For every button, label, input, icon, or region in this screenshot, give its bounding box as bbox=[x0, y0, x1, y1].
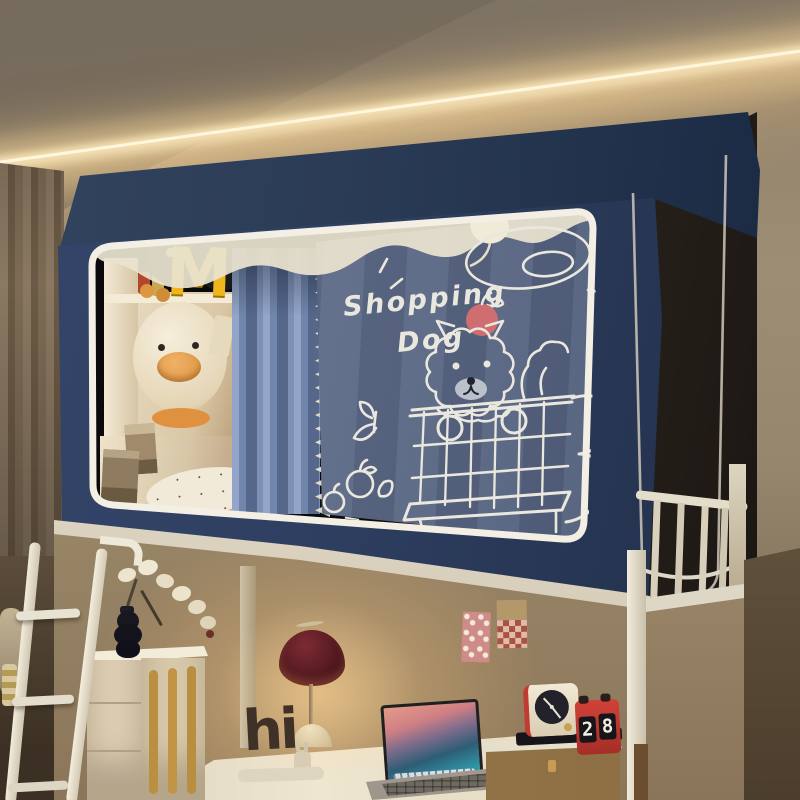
duck-feet bbox=[152, 408, 210, 428]
duck-eye-left bbox=[158, 344, 165, 351]
flip-digit-left: 2 bbox=[578, 716, 596, 743]
sideboard-slat-door bbox=[141, 658, 205, 800]
cabinet-handle bbox=[548, 760, 556, 772]
mcdonalds-arch-icon: M bbox=[165, 239, 233, 307]
flip-calendar: 2 8 bbox=[575, 699, 622, 755]
inner-curtain-blue bbox=[232, 248, 320, 514]
checker-card-pattern bbox=[497, 620, 527, 649]
door-slat bbox=[149, 670, 158, 794]
window-curtain bbox=[0, 163, 64, 565]
hearts-card bbox=[461, 612, 491, 663]
chair-leg bbox=[634, 744, 648, 800]
orange-fruit bbox=[140, 284, 154, 298]
flip-digit-right: 8 bbox=[598, 713, 616, 740]
photo-card-2 bbox=[101, 449, 140, 509]
door-slat bbox=[187, 666, 196, 794]
room-photo: M Shopping Dog bbox=[0, 0, 800, 800]
drawer-line bbox=[87, 702, 141, 704]
clock-dial bbox=[534, 689, 570, 725]
door-slat bbox=[168, 668, 177, 794]
black-vase bbox=[112, 606, 144, 658]
hi-letters: hi bbox=[241, 699, 297, 763]
analog-clock bbox=[523, 683, 581, 738]
checker-card bbox=[497, 600, 528, 649]
clock-button bbox=[564, 723, 572, 731]
drawer-line bbox=[87, 750, 141, 752]
duck-beak bbox=[157, 352, 201, 382]
sideboard-drawers bbox=[87, 660, 141, 800]
lamp-stem bbox=[309, 684, 313, 728]
